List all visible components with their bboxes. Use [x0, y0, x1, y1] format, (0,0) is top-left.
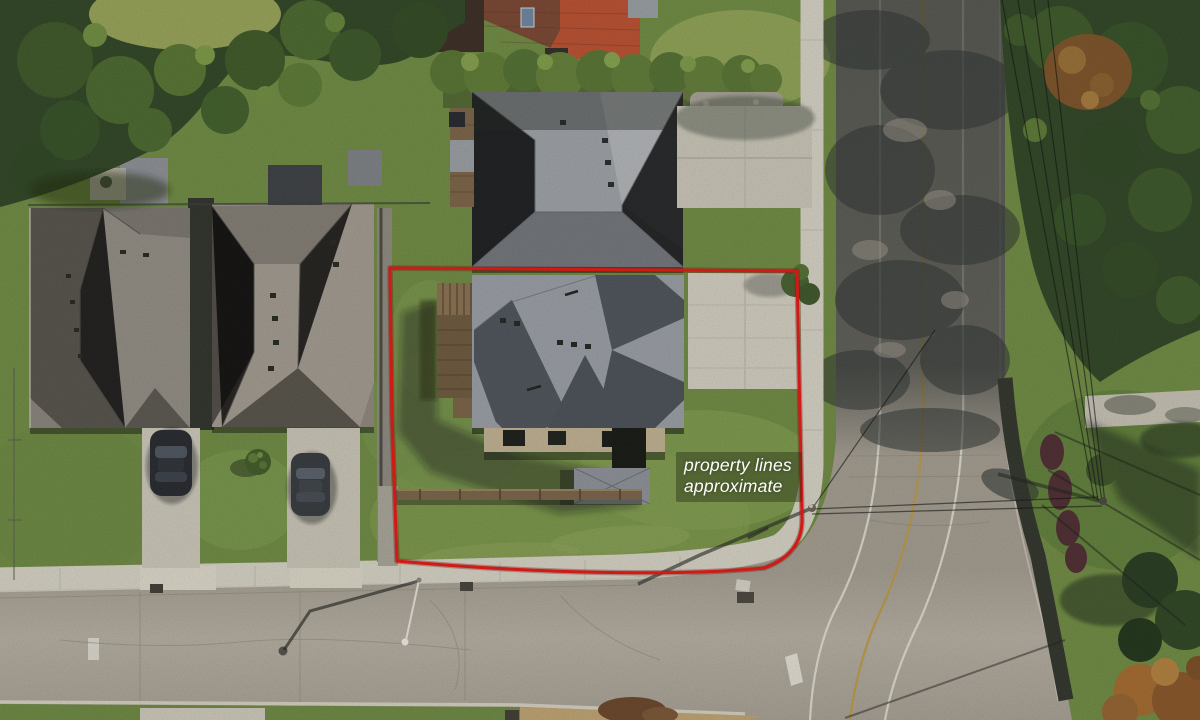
aerial-photo [0, 0, 1200, 720]
photo-grain-light [0, 0, 1200, 720]
aerial-photo-stage: property lines approximate [0, 0, 1200, 720]
disclaimer-line2: approximate [684, 476, 783, 497]
property-lines-disclaimer: property lines approximate [676, 452, 802, 502]
disclaimer-line1: property lines [684, 455, 792, 476]
